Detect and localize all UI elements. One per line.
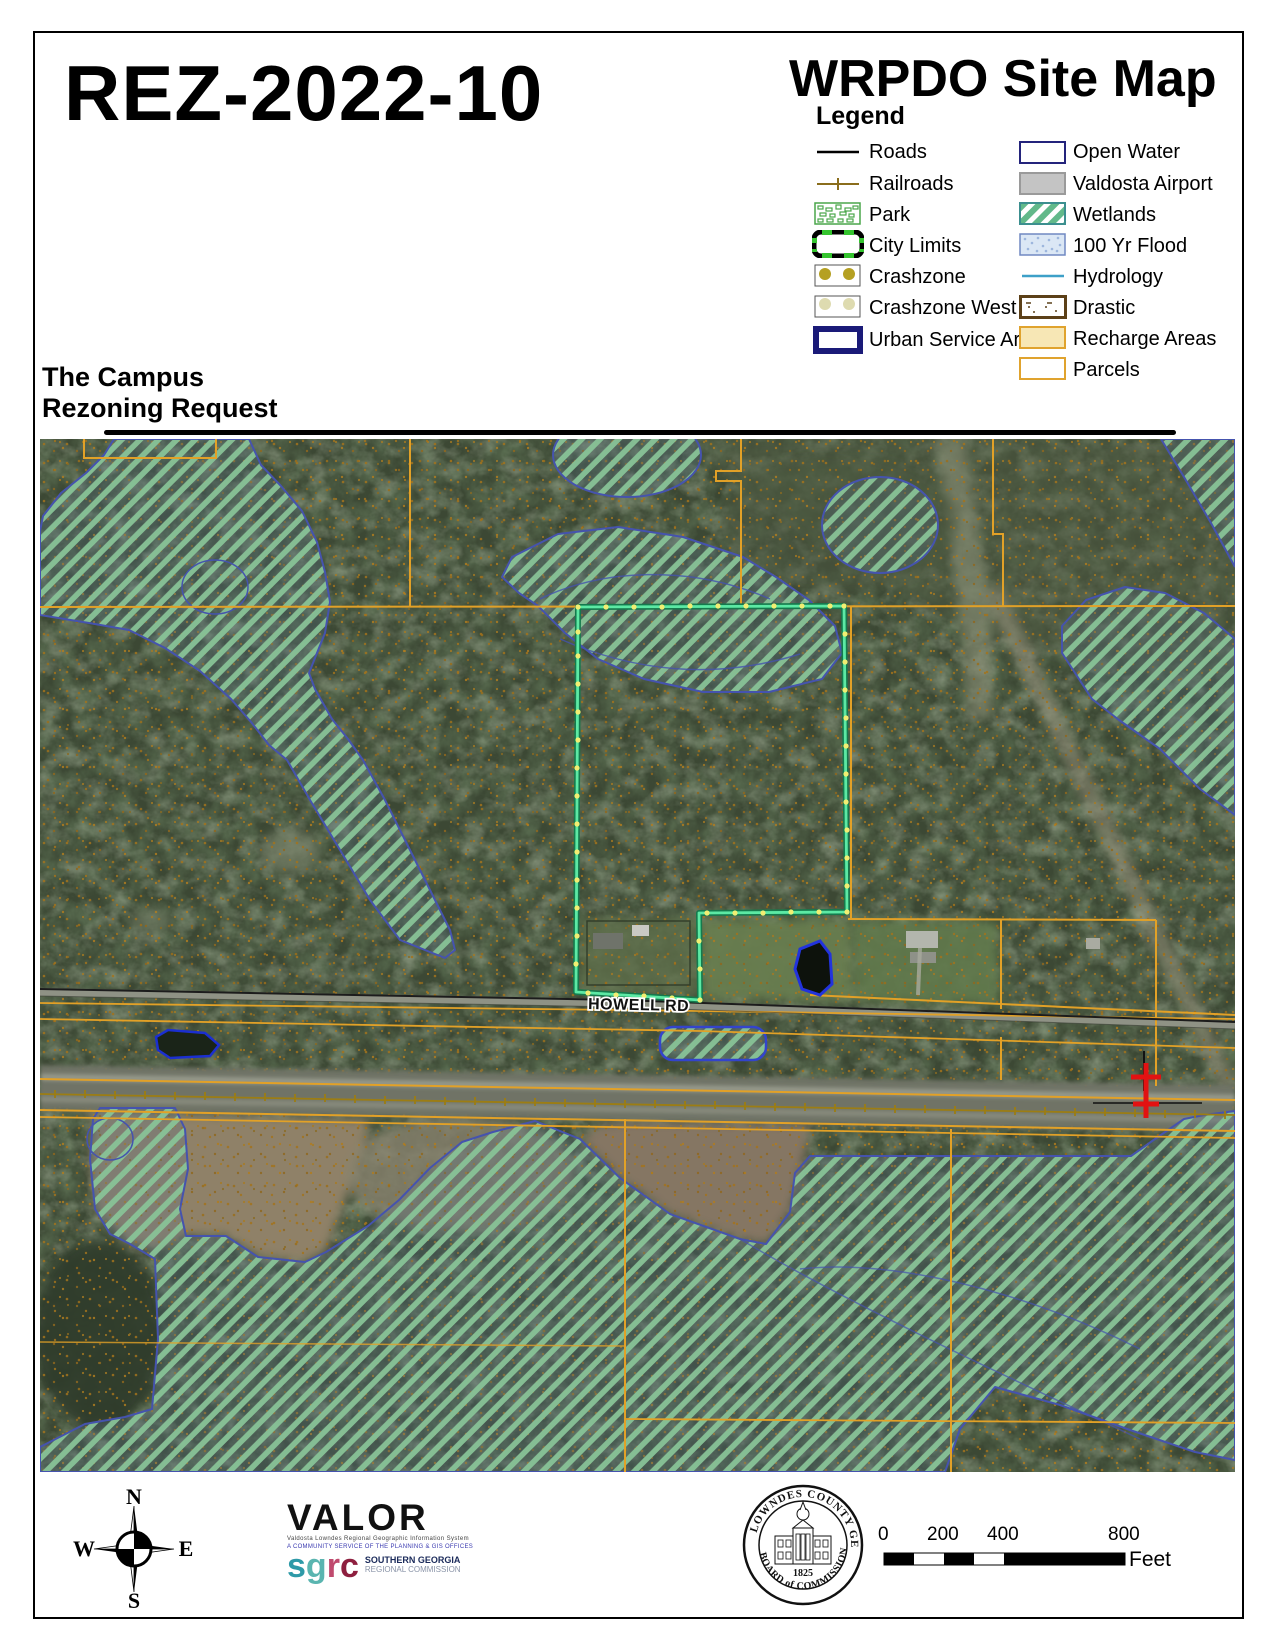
svg-text:1825: 1825 — [793, 1568, 813, 1579]
svg-text:HOWELL RD: HOWELL RD — [588, 996, 689, 1015]
svg-text:W: W — [73, 1536, 95, 1561]
svg-text:E: E — [179, 1536, 194, 1561]
svg-text:N: N — [126, 1484, 142, 1509]
